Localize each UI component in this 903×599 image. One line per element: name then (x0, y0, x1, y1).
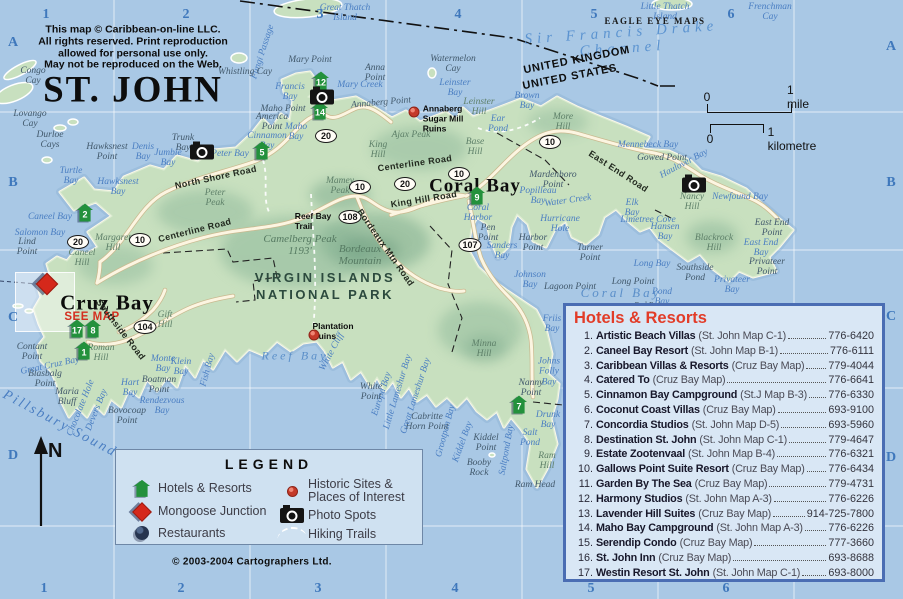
map-label-point: Maria Bluff (55, 387, 79, 408)
hotel-item-name: Caneel Bay Resort (596, 345, 688, 357)
hotel-marker-number: 8 (85, 326, 101, 336)
legend-item-label: Mongoose Junction (158, 505, 266, 518)
map-label-water: Great Thatch Island (320, 3, 371, 24)
hiking-trail-icon (277, 526, 308, 543)
map-label-water: Friis Bay (543, 314, 561, 335)
historic-site-icon (309, 330, 320, 341)
road-badge-10: 10 (539, 135, 561, 149)
hotel-list-item: 2.Caneel Bay Resort(St. John Map B-1)776… (574, 345, 874, 360)
road-badge-107: 107 (458, 238, 481, 252)
legend-item-label: Photo Spots (308, 509, 376, 522)
map-label-water: Long Bay (634, 259, 671, 269)
grid-col-label: 2 (178, 581, 185, 597)
map-label-hillbig: Camelberg Peak 1193' (263, 234, 336, 258)
hotel-item-name: St. John Inn (596, 552, 655, 564)
grid-row-label: D (8, 448, 18, 464)
hotel-item-number: 5. (574, 389, 593, 401)
hotels-list: 1.Artistic Beach Villas(St. John Map C-1… (574, 330, 874, 582)
hotel-item-phone: 779-4044 (828, 360, 874, 372)
map-label-point: America Point (256, 112, 288, 133)
hotel-marker-17[interactable]: 17 (69, 320, 85, 338)
hotel-list-item: 3.Caribbean Villas & Resorts(Cruz Bay Ma… (574, 360, 874, 375)
map-label-water: Coral Harbor (464, 203, 493, 224)
mile-scale (707, 104, 792, 113)
road-badge-104: 104 (133, 320, 156, 334)
copyright-notice: This map © Caribbean-on-line LLC. All ri… (38, 25, 228, 72)
hotel-list-item: 8.Destination St. John(St. John Map C-1)… (574, 434, 874, 449)
hotel-item-map-ref: (Cruz Bay Map) (658, 552, 731, 564)
km-scale (710, 124, 764, 133)
hotel-item-name: Cinnamon Bay Campground (596, 389, 737, 401)
hotel-item-name: Westin Resort St. John (596, 567, 710, 579)
map-label-point: East End Point (755, 218, 790, 239)
grid-row-label: D (886, 450, 896, 466)
map-label-water: Salt Pond (520, 428, 540, 449)
legend-item: Mongoose Junction (126, 505, 276, 519)
hotel-item-number: 16. (574, 552, 593, 564)
hotel-item-name: Destination St. John (596, 434, 696, 446)
hotel-item-phone: 693-5960 (828, 419, 874, 431)
grid-row-label: B (886, 175, 895, 191)
dot-leader (805, 530, 827, 531)
hotel-marker-5[interactable]: 5 (254, 142, 270, 160)
hotel-list-item: 7.Concordia Studios(St. John Map D-5)693… (574, 419, 874, 434)
hotel-list-item: 16.St. John Inn(Cruz Bay Map)693-8688 (574, 552, 874, 567)
legend-item: Photo Spots (276, 508, 412, 523)
legend-item: Hiking Trails (276, 527, 412, 542)
map-label-hill: Caneel Hill (69, 248, 96, 269)
dot-leader (773, 516, 805, 517)
legend-icon-cell (126, 505, 158, 519)
historic-site-icon (409, 107, 420, 118)
map-label-water: Hurricane Hole (540, 214, 580, 235)
hotel-item-number: 8. (574, 434, 593, 446)
map-label-water: Caneel Bay (28, 212, 72, 222)
legend-item-label: Historic Sites & Places of Interest (308, 478, 405, 504)
dot-leader (778, 412, 827, 413)
dot-leader (727, 382, 826, 383)
dot-leader (769, 486, 826, 487)
grid-col-label: 5 (591, 7, 598, 23)
photo-spot-icon (190, 145, 214, 160)
hotel-marker-number: 14 (312, 108, 328, 118)
map-label-water: Jumbie Bay (154, 148, 181, 169)
hotel-item-phone: 776-6330 (828, 389, 874, 401)
hotel-item-number: 9. (574, 448, 593, 460)
legend-right-column: Historic Sites & Places of InterestPhoto… (276, 476, 412, 544)
st-john-map: Great Thatch IslandLittle Thatch IslandF… (0, 0, 903, 599)
dot-leader (807, 471, 827, 472)
hotel-item-phone: 779-4647 (828, 434, 874, 446)
hotel-item-name: Catered To (596, 374, 650, 386)
hotel-list-item: 1.Artistic Beach Villas(St. John Map C-1… (574, 330, 874, 345)
dot-leader (754, 545, 826, 546)
map-label-point: Boatman Point (142, 375, 176, 396)
map-label-point: Ram Head (515, 480, 555, 490)
hotel-marker-number: 5 (254, 148, 270, 158)
map-label-point: Contant Point (17, 342, 48, 363)
legend-title: LEGEND (126, 456, 412, 472)
hotel-item-map-ref: (St. John Map C-1) (698, 330, 786, 342)
road-badge-10: 10 (448, 167, 470, 181)
map-label-hill: Minna Hill (472, 339, 497, 360)
map-label-waterbig: Coral Bay (581, 286, 662, 300)
hotel-item-name: Coconut Coast Villas (596, 404, 700, 416)
hotel-item-map-ref: (Cruz Bay Map) (695, 478, 768, 490)
dot-leader (788, 338, 826, 339)
hotel-item-map-ref: (St. John Map A-3) (716, 522, 802, 534)
dot-leader (806, 368, 826, 369)
map-label-park: VIRGIN ISLANDS NATIONAL PARK (255, 270, 395, 304)
map-label-water: Rendezvous Bay (140, 396, 185, 417)
grid-col-label: 3 (315, 581, 322, 597)
hotel-item-phone: 776-6434 (828, 463, 874, 475)
map-label-point: Mardenboro Point (529, 170, 576, 191)
compass: N (28, 434, 72, 534)
mile-label: 1 mile (787, 83, 809, 111)
map-label-point: Lovango Cay (13, 109, 46, 130)
hotel-item-number: 4. (574, 374, 593, 386)
hotel-marker-number: 9 (469, 193, 485, 203)
map-label-point: Privateer Point (749, 257, 785, 278)
hotel-list-item: 13.Lavender Hill Suites(Cruz Bay Map)914… (574, 508, 874, 523)
grid-row-label: C (8, 310, 18, 326)
map-label-point: Bovocoap Point (108, 406, 146, 427)
legend-item-label: Hotels & Resorts (158, 482, 252, 495)
hotel-item-map-ref: (Cruz Bay Map) (732, 360, 805, 372)
road-badge-20: 20 (394, 177, 416, 191)
hotel-item-map-ref: (Cruz Bay Map) (653, 374, 726, 386)
hotel-item-phone: 776-6420 (828, 330, 874, 342)
map-label-water: Denis Bay (132, 142, 154, 163)
map-label-water: Francis Bay (275, 82, 305, 103)
hotel-list-item: 4.Catered To(Cruz Bay Map)776-6641 (574, 374, 874, 389)
hotel-item-name: Caribbean Villas & Resorts (596, 360, 729, 372)
hotel-item-phone: 776-6641 (828, 374, 874, 386)
legend-item: Restaurants (126, 526, 276, 540)
map-label-poi: Reef Bay Trail (295, 212, 331, 232)
hotel-item-map-ref: (Cruz Bay Map) (698, 508, 771, 520)
map-label-water: East End Bay (744, 238, 779, 259)
grid-col-label: 3 (317, 7, 324, 23)
dot-leader (781, 427, 826, 428)
legend-icon-cell (276, 486, 308, 497)
map-label-water: Hawksnest Bay (97, 177, 138, 198)
hotel-item-number: 12. (574, 493, 593, 505)
hotel-item-map-ref: (St. John Map B-1) (691, 345, 778, 357)
hotel-marker-1[interactable]: 1 (76, 342, 92, 360)
hotel-item-phone: 693-8000 (828, 567, 874, 579)
hotel-list-item: 17.Westin Resort St. John(St. John Map C… (574, 567, 874, 582)
map-label-point: Durloe Cays (37, 130, 64, 151)
map-label-point: Hawksnest Point (86, 142, 127, 163)
map-label-hill: Peter Peak (205, 188, 226, 209)
map-label-point: Mary Point (288, 55, 332, 65)
map-label-waterbig: Reef Bay (262, 350, 329, 363)
legend-item: Historic Sites & Places of Interest (276, 478, 412, 504)
hotel-item-number: 13. (574, 508, 593, 520)
hotel-item-name: Lavender Hill Suites (596, 508, 695, 520)
legend-item-label: Restaurants (158, 527, 225, 540)
hotel-item-phone: 693-8688 (828, 552, 874, 564)
hotels-resorts-panel: Hotels & Resorts 1.Artistic Beach Villas… (563, 303, 885, 582)
hotel-list-item: 15.Serendip Condo(Cruz Bay Map)777-3660 (574, 537, 874, 552)
hotel-list-item: 9.Estate Zootenvaal(St. John Map B-4)776… (574, 448, 874, 463)
hotel-item-number: 15. (574, 537, 593, 549)
dot-leader (777, 456, 826, 457)
mongoose-junction-icon (132, 502, 152, 522)
road-badge-20: 20 (315, 129, 337, 143)
road-badge-108: 108 (338, 210, 361, 224)
legend: LEGEND Hotels & ResortsMongoose Junction… (115, 449, 423, 545)
hotel-item-phone: 776-6226 (828, 493, 874, 505)
legend-icon-cell (276, 508, 308, 523)
map-label-water: Mary Creek (337, 80, 382, 90)
grid-col-label: 4 (452, 581, 459, 597)
km-label: 1 kilometre (768, 125, 817, 153)
photo-spot-icon (310, 90, 334, 105)
hotel-icon (134, 480, 150, 497)
map-label-hillbig: Bordeaux Mountain (339, 244, 382, 268)
hotel-item-phone: 914-725-7800 (807, 508, 874, 520)
hotel-item-map-ref: (Cruz Bay Map) (680, 537, 753, 549)
hotel-list-item: 5.Cinnamon Bay Campground(St.J Map B-3)7… (574, 389, 874, 404)
hotel-item-number: 6. (574, 404, 593, 416)
hotel-item-name: Concordia Studios (596, 419, 689, 431)
hotel-item-map-ref: (St.J Map B-3) (740, 389, 807, 401)
hotel-marker-number: 17 (69, 326, 85, 336)
hotel-item-number: 14. (574, 522, 593, 534)
hotel-list-item: 11.Garden By The Sea(Cruz Bay Map)779-47… (574, 478, 874, 493)
hotel-item-number: 2. (574, 345, 593, 357)
hotel-item-number: 10. (574, 463, 593, 475)
photo-spot-icon (280, 508, 304, 523)
map-label-point: Southside Pond (677, 263, 714, 284)
grid-col-label: 1 (41, 581, 48, 597)
hotel-item-phone: 693-9100 (828, 404, 874, 416)
map-label-water: Mennebeck Bay (618, 140, 678, 150)
road-badge-20: 20 (67, 235, 89, 249)
map-label-water: Newfound Bay (712, 192, 768, 202)
map-label-hill: More Hill (553, 112, 573, 133)
map-label-point: Watermelon Cay (430, 54, 476, 75)
hotel-item-phone: 777-3660 (828, 537, 874, 549)
dot-leader (809, 397, 826, 398)
map-label-water: Peter Bay (211, 149, 249, 159)
map-label-point: Turner Point (577, 243, 603, 264)
hotel-item-map-ref: (Cruz Bay Map) (703, 404, 776, 416)
hotel-marker-7[interactable]: 7 (511, 396, 527, 414)
photo-spot-icon (682, 178, 706, 193)
grid-row-label: A (8, 35, 18, 51)
grid-col-label: 5 (588, 581, 595, 597)
map-label-hill: Gift Hill (158, 310, 173, 331)
hotel-marker-number: 1 (76, 348, 92, 358)
map-label-water: Ear Pond (488, 114, 508, 135)
legend-item-label: Hiking Trails (308, 528, 376, 541)
page-title: ST. JOHN (43, 69, 223, 112)
map-label-water: Maho Bay (285, 122, 307, 143)
cartographer-credit: © 2003-2004 Cartographers Ltd. (172, 557, 332, 568)
restaurant-icon (135, 526, 149, 540)
grid-row-label: B (8, 175, 17, 191)
hotel-item-number: 7. (574, 419, 593, 431)
hotel-list-item: 12.Harmony Studios(St. John Map A-3)776-… (574, 493, 874, 508)
dot-leader (802, 575, 826, 576)
hotel-item-map-ref: (St. John Map D-5) (692, 419, 780, 431)
hotel-item-number: 17. (574, 567, 593, 579)
grid-row-label: C (886, 309, 896, 325)
map-label-water: Sanders Bay (487, 241, 518, 262)
legend-left-column: Hotels & ResortsMongoose JunctionRestaur… (126, 476, 276, 544)
map-label-water: Turtle Bay (60, 166, 83, 187)
hotel-item-map-ref: (St. John Map C-1) (699, 434, 787, 446)
hotel-list-item: 6.Coconut Coast Villas(Cruz Bay Map)693-… (574, 404, 874, 419)
map-label-poi: Annaberg Sugar Mill Ruins (423, 104, 464, 133)
map-label-point: Lind Point (17, 237, 38, 258)
map-label-pub: EAGLE EYE MAPS (604, 17, 705, 27)
hotel-item-name: Garden By The Sea (596, 478, 692, 490)
map-label-hill: Margaret Hill (95, 233, 131, 254)
mile-zero-label: 0 (704, 90, 711, 104)
hotels-panel-title: Hotels & Resorts (574, 309, 874, 328)
map-label-hill: Base Hill (466, 137, 484, 158)
grid-col-label: 4 (455, 7, 462, 23)
hotel-item-name: Gallows Point Suite Resort (596, 463, 729, 475)
historic-site-icon (287, 486, 298, 497)
legend-icon-cell (126, 526, 158, 540)
hotel-item-name: Serendip Condo (596, 537, 677, 549)
hotel-item-name: Artistic Beach Villas (596, 330, 695, 342)
hotel-item-number: 3. (574, 360, 593, 372)
hotel-item-phone: 776-6226 (828, 522, 874, 534)
hotel-marker-9[interactable]: 9 (469, 187, 485, 205)
hotel-item-phone: 776-6111 (830, 345, 874, 357)
grid-row-label: A (886, 39, 896, 55)
hotel-item-map-ref: (St. John Map A-3) (685, 493, 771, 505)
map-label-water: Privateer Bay (714, 275, 750, 296)
map-label-hill: Blackrock Hill (695, 233, 733, 254)
road-badge-10: 10 (349, 180, 371, 194)
hotel-item-number: 1. (574, 330, 593, 342)
km-zero-label: 0 (707, 132, 714, 146)
map-label-water: Johnson Bay (514, 270, 546, 291)
map-label-water: Leinster Bay (439, 78, 470, 99)
map-label-point: Harbor Point (519, 233, 548, 254)
map-label-water: Brown Bay (515, 91, 540, 112)
dot-leader (733, 560, 826, 561)
hotel-item-name: Maho Bay Campground (596, 522, 713, 534)
road-badge-10: 10 (129, 233, 151, 247)
hotel-marker-2[interactable]: 2 (77, 204, 93, 222)
hotel-list-item: 10.Gallows Point Suite Resort(Cruz Bay M… (574, 463, 874, 478)
grid-col-label: 2 (183, 7, 190, 23)
map-label-point: Booby Rock (467, 458, 491, 479)
legend-icon-cell (126, 480, 158, 497)
hotel-item-phone: 776-6321 (828, 448, 874, 460)
hotel-item-map-ref: (St. John Map B-4) (688, 448, 775, 460)
hotel-list-item: 14.Maho Bay Campground(St. John Map A-3)… (574, 522, 874, 537)
grid-col-label: 6 (723, 581, 730, 597)
map-label-point: White Point (360, 382, 382, 403)
compass-n-label: N (48, 440, 62, 463)
dot-leader (780, 353, 828, 354)
hotel-marker-number: 7 (511, 402, 527, 412)
map-label-hill: King Hill (369, 140, 387, 161)
hotel-item-name: Harmony Studios (596, 493, 682, 505)
legend-item: Hotels & Resorts (126, 480, 276, 497)
hotel-marker-8[interactable]: 8 (85, 320, 101, 338)
hotel-item-map-ref: (Cruz Bay Map) (732, 463, 805, 475)
map-label-point: Pen Point (478, 223, 499, 244)
dot-leader (774, 501, 827, 502)
map-label-point: Kiddel Point (473, 433, 498, 454)
map-label-water: Hart Bay (121, 378, 139, 399)
hotel-item-number: 11. (574, 478, 593, 490)
map-label-hill: Ram Hill (538, 451, 555, 472)
dot-leader (789, 442, 826, 443)
map-label-water: Elk Bay (625, 198, 640, 219)
legend-icon-cell (276, 527, 308, 542)
hotel-item-name: Estate Zootenvaal (596, 448, 685, 460)
grid-col-label: 1 (43, 7, 50, 23)
hotel-item-map-ref: (St. John Map C-1) (713, 567, 801, 579)
hotel-marker-number: 2 (77, 210, 93, 220)
map-label-hill: Nancy Hill (680, 192, 704, 213)
grid-col-label: 6 (728, 7, 735, 23)
hotel-item-phone: 779-4731 (828, 478, 874, 490)
